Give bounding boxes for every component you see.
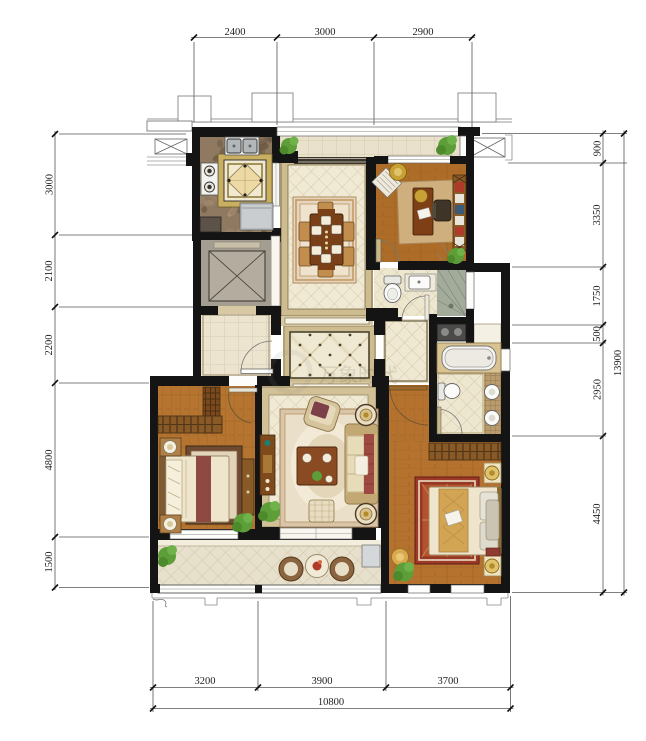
- svg-text:3200: 3200: [195, 676, 216, 687]
- svg-text:4800: 4800: [44, 450, 55, 471]
- svg-text:3000: 3000: [315, 27, 336, 38]
- svg-text:13900: 13900: [613, 350, 624, 376]
- svg-text:3700: 3700: [438, 676, 459, 687]
- svg-text:2950: 2950: [593, 379, 604, 400]
- svg-text:2100: 2100: [44, 261, 55, 282]
- svg-text:2900: 2900: [413, 27, 434, 38]
- svg-text:4450: 4450: [592, 504, 603, 525]
- svg-text:10800: 10800: [318, 697, 344, 708]
- svg-text:1750: 1750: [592, 286, 603, 307]
- svg-text:2400: 2400: [225, 27, 246, 38]
- svg-text:900: 900: [593, 141, 604, 157]
- svg-text:万象时代: 万象时代: [318, 364, 398, 387]
- svg-text:3000: 3000: [45, 174, 56, 195]
- svg-text:3900: 3900: [312, 676, 333, 687]
- svg-text:1500: 1500: [44, 552, 55, 573]
- svg-text:3350: 3350: [592, 205, 603, 226]
- svg-text:500: 500: [592, 326, 603, 342]
- svg-text:2200: 2200: [44, 335, 55, 356]
